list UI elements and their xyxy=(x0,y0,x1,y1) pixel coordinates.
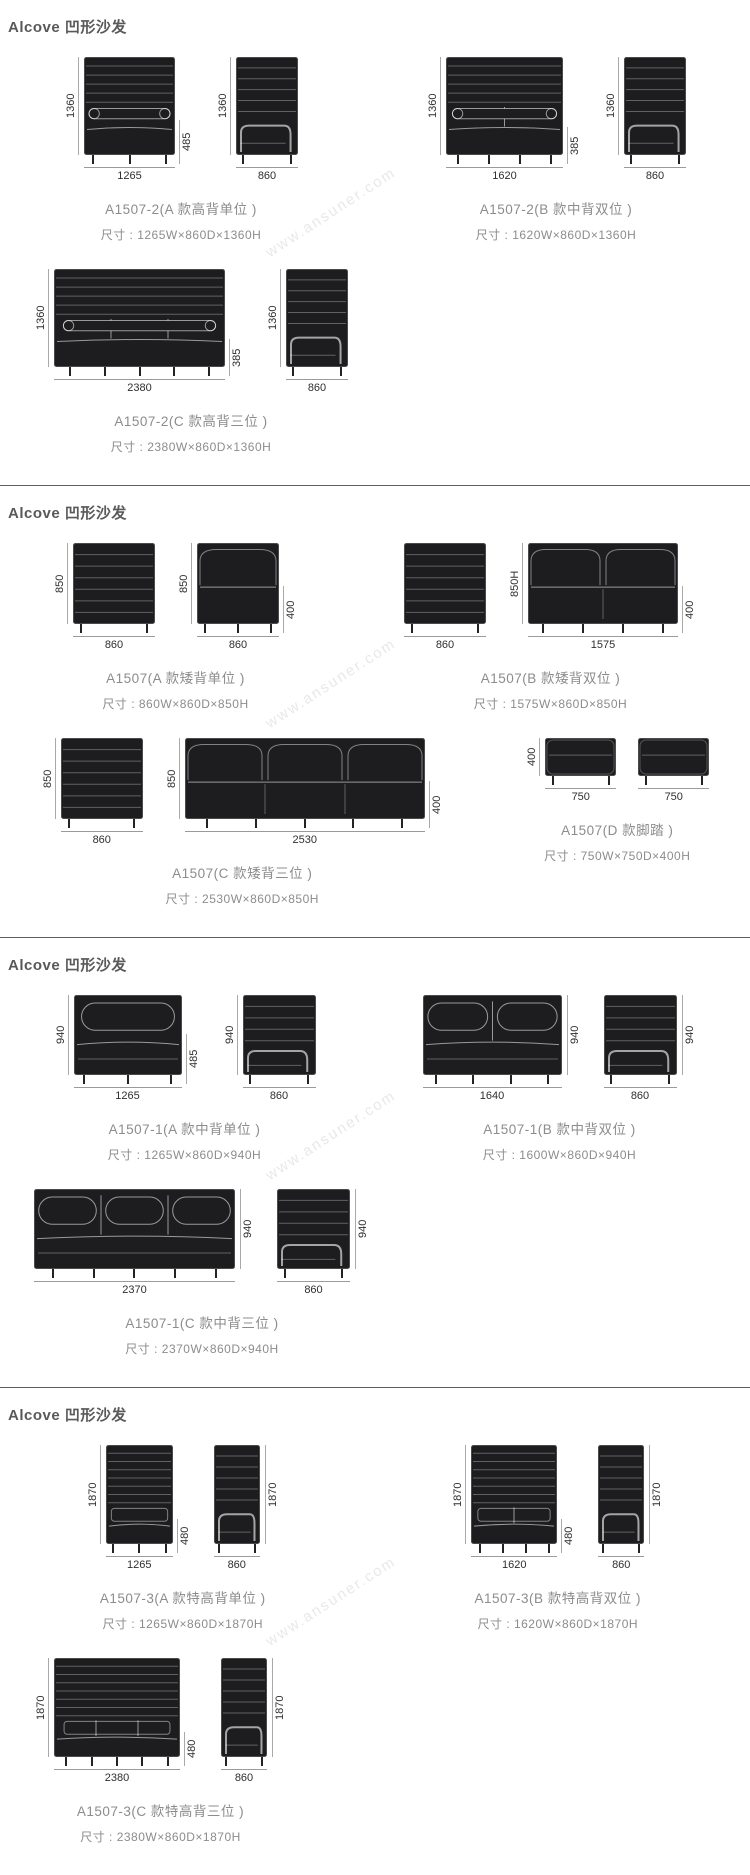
dimension-line xyxy=(191,543,192,624)
sofa-legs xyxy=(61,819,143,828)
height-dimension-label: 1360 xyxy=(266,269,280,367)
width-dimension-label: 860 xyxy=(598,1557,644,1573)
product-dimensions: 尺寸 : 750W×750D×400H xyxy=(544,847,690,864)
width-dimension-label: 860 xyxy=(73,637,155,653)
height-dimension-label: 1360 xyxy=(34,269,48,367)
product-card: 1870 1620 480 860 1870A1507-3(B 款特高背双位 )… xyxy=(451,1445,664,1632)
width-dimension-label: 860 xyxy=(61,832,143,848)
drawing-front-view: 1870 1620 480 xyxy=(451,1445,576,1573)
height-dimension: 1870 xyxy=(34,1658,49,1757)
sofa-front-drawing xyxy=(185,738,425,819)
width-dimension-label: 1640 xyxy=(423,1088,562,1104)
sofa-legs xyxy=(74,1075,182,1084)
width-dimension-label: 860 xyxy=(286,380,348,396)
height-dimension: 1360 xyxy=(426,57,441,155)
product-model: A1507-1(A 款中背单位 ) xyxy=(109,1118,261,1138)
product-dimensions: 尺寸 : 1620W×860D×1360H xyxy=(476,226,637,243)
product-model: A1507-2(B 款中背双位 ) xyxy=(480,198,633,218)
seat-height-dimension: 485 xyxy=(179,120,194,164)
dimension-line xyxy=(78,57,79,155)
height-dimension-label: 940 xyxy=(683,995,697,1075)
sofa-legs xyxy=(528,624,678,633)
product-dimensions: 尺寸 : 2380W×860D×1870H xyxy=(80,1828,241,1845)
product-views: 1870 1620 480 860 1870 xyxy=(451,1445,664,1573)
product-row: 850 860 850 2530 400 A1507(C 款矮背三位 )尺寸 :… xyxy=(0,738,750,907)
height-dimension: 1360 xyxy=(604,57,619,155)
seat-height-dimension: 385 xyxy=(567,127,582,164)
drawing-side-view: 860 940 xyxy=(604,995,697,1104)
product-model: A1507-2(C 款高背三位 ) xyxy=(114,410,267,430)
sofa-legs xyxy=(214,1544,260,1553)
drawing-front-view: 1360 1620 385 xyxy=(426,57,582,184)
seat-height-dimension-label: 385 xyxy=(568,127,582,164)
seat-height-dimension: 480 xyxy=(177,1519,192,1553)
product-row: 1360 2380 385 1360 860 A1507-2(C 款高背三位 )… xyxy=(0,269,750,455)
seat-height-dimension: 485 xyxy=(186,1034,201,1084)
drawing-side-view: 860 1870 xyxy=(598,1445,664,1573)
height-dimension: 1360 xyxy=(266,269,281,367)
product-views: 850 860 850 860 400 xyxy=(53,543,298,653)
height-dimension-label: 940 xyxy=(356,1189,370,1269)
sofa-legs xyxy=(404,624,486,633)
seat-height-dimension-label: 485 xyxy=(187,1034,201,1084)
sofa-legs xyxy=(471,1544,557,1553)
width-dimension-label: 860 xyxy=(214,1557,260,1573)
dimension-line xyxy=(539,738,540,776)
dimension-line xyxy=(465,1445,466,1544)
catalog-section: Alcove 凹形沙发www.ansuner.com1360 1265 485 … xyxy=(0,0,750,485)
width-dimension-label: 2370 xyxy=(34,1282,235,1298)
sofa-legs xyxy=(286,367,348,376)
sofa-front-drawing xyxy=(74,995,182,1075)
section-header: Alcove 凹形沙发 xyxy=(8,502,750,523)
product-card: 1360 2380 385 1360 860 A1507-2(C 款高背三位 )… xyxy=(34,269,348,455)
height-dimension-label: 1870 xyxy=(650,1445,664,1544)
sofa-legs xyxy=(236,155,298,164)
sofa-legs xyxy=(604,1075,677,1084)
width-dimension-label: 860 xyxy=(604,1088,677,1104)
product-card: 1870 1265 480 860 1870A1507-3(A 款特高背单位 )… xyxy=(86,1445,280,1632)
height-dimension-label: 850 xyxy=(177,543,191,624)
sofa-front-drawing xyxy=(471,1445,557,1544)
drawing-front-view: 1870 2380 480 xyxy=(34,1658,199,1786)
height-dimension: 1870 xyxy=(649,1445,664,1544)
product-dimensions: 尺寸 : 1265W×860D×1360H xyxy=(101,226,262,243)
catalog-section: Alcove 凹形沙发www.ansuner.com1870 1265 480 … xyxy=(0,1387,750,1875)
height-dimension-label: 850H xyxy=(508,543,522,624)
product-model: A1507-3(B 款特高背双位 ) xyxy=(474,1587,641,1607)
catalog-section: Alcove 凹形沙发www.ansuner.com850 860 850 86… xyxy=(0,485,750,937)
height-dimension-label: 1360 xyxy=(426,57,440,155)
product-card: 2370 940 860 940A1507-1(C 款中背三位 )尺寸 : 23… xyxy=(34,1189,370,1357)
height-dimension: 1360 xyxy=(216,57,231,155)
product-views: 400 750 750 xyxy=(525,738,709,805)
drawing-side-view: 860 xyxy=(404,543,486,653)
height-dimension: 1870 xyxy=(272,1658,287,1757)
dimension-line xyxy=(522,543,523,624)
drawing-front-view: 1360 2380 385 xyxy=(34,269,244,396)
drawing-front-view: 850H 1575 400 xyxy=(508,543,697,653)
sofa-side-drawing xyxy=(286,269,348,367)
product-views: 1870 1265 480 860 1870 xyxy=(86,1445,280,1573)
sofa-legs xyxy=(34,1269,235,1278)
height-dimension: 1360 xyxy=(34,269,49,367)
width-dimension-label: 860 xyxy=(236,168,298,184)
sofa-legs xyxy=(73,624,155,633)
product-views: 2370 940 860 940 xyxy=(34,1189,370,1298)
drawing-front-view: 1640 940 xyxy=(423,995,582,1104)
drawing-side-view: 850 860 xyxy=(41,738,143,848)
width-dimension-label: 1265 xyxy=(74,1088,182,1104)
sofa-side-drawing xyxy=(277,1189,350,1269)
product-model: A1507-1(C 款中背三位 ) xyxy=(125,1312,278,1332)
section-header: Alcove 凹形沙发 xyxy=(8,954,750,975)
sofa-front-drawing xyxy=(54,1658,180,1757)
sofa-stool-drawing xyxy=(638,738,709,776)
height-dimension: 1870 xyxy=(451,1445,466,1544)
height-dimension: 940 xyxy=(240,1189,255,1269)
seat-height-dimension-label: 480 xyxy=(562,1519,576,1553)
sofa-legs xyxy=(106,1544,173,1553)
height-dimension: 850 xyxy=(165,738,180,819)
drawing-front-view: 2370 940 xyxy=(34,1189,255,1298)
width-dimension-label: 860 xyxy=(624,168,686,184)
product-row: 1360 1265 485 1360 860 A1507-2(A 款高背单位 )… xyxy=(0,57,750,243)
height-dimension: 940 xyxy=(223,995,238,1075)
height-dimension-label: 1360 xyxy=(604,57,618,155)
seat-height-dimension-label: 400 xyxy=(683,586,697,633)
seat-height-dimension-label: 480 xyxy=(185,1732,199,1766)
sofa-legs xyxy=(624,155,686,164)
seat-height-dimension-label: 400 xyxy=(430,781,444,828)
dimension-line xyxy=(67,543,68,624)
sofa-legs xyxy=(197,624,279,633)
width-dimension-label: 860 xyxy=(243,1088,316,1104)
sofa-front-drawing xyxy=(423,995,562,1075)
product-model: A1507(D 款脚踏 ) xyxy=(561,819,673,839)
sofa-legs xyxy=(598,1544,644,1553)
sofa-side-drawing xyxy=(61,738,143,819)
sofa-front-drawing xyxy=(34,1189,235,1269)
product-card: 400 750 750 A1507(D 款脚踏 )尺寸 : 750W×750D×… xyxy=(525,738,709,864)
sofa-legs xyxy=(423,1075,562,1084)
seat-height-dimension: 400 xyxy=(283,586,298,633)
sofa-legs xyxy=(545,776,616,785)
product-card: 850 860 850 860 400 A1507(A 款矮背单位 )尺寸 : … xyxy=(53,543,298,712)
product-dimensions: 尺寸 : 1265W×860D×1870H xyxy=(102,1615,263,1632)
product-row: 1870 1265 480 860 1870A1507-3(A 款特高背单位 )… xyxy=(0,1445,750,1632)
dimension-line xyxy=(48,269,49,367)
drawing-front-view: 850 2530 400 xyxy=(165,738,444,848)
width-dimension-label: 1620 xyxy=(471,1557,557,1573)
height-dimension: 1870 xyxy=(86,1445,101,1544)
sofa-legs xyxy=(54,367,225,376)
height-dimension-label: 1360 xyxy=(216,57,230,155)
width-dimension-label: 860 xyxy=(404,637,486,653)
product-views: 1360 1265 485 1360 860 xyxy=(64,57,298,184)
sofa-front-drawing xyxy=(446,57,563,155)
product-dimensions: 尺寸 : 860W×860D×850H xyxy=(102,695,248,712)
height-dimension-label: 1870 xyxy=(86,1445,100,1544)
sofa-side-drawing xyxy=(404,543,486,624)
seat-height-dimension: 480 xyxy=(561,1519,576,1553)
sofa-legs xyxy=(84,155,175,164)
height-dimension-label: 1870 xyxy=(273,1658,287,1757)
seat-height-dimension: 385 xyxy=(229,339,244,376)
sofa-side-drawing xyxy=(624,57,686,155)
drawing-side-view: 860 1870 xyxy=(214,1445,280,1573)
drawing-side-view: 1360 860 xyxy=(216,57,298,184)
height-dimension-label: 850 xyxy=(165,738,179,819)
dimension-line xyxy=(230,57,231,155)
product-model: A1507-1(B 款中背双位 ) xyxy=(483,1118,636,1138)
product-dimensions: 尺寸 : 1600W×860D×940H xyxy=(483,1146,636,1163)
product-views: 940 1265 485 940 860 xyxy=(54,995,316,1104)
sofa-front-drawing xyxy=(54,269,225,367)
height-dimension: 1360 xyxy=(64,57,79,155)
width-dimension-label: 2380 xyxy=(54,380,225,396)
sofa-front-drawing xyxy=(528,543,678,624)
seat-height-dimension-label: 385 xyxy=(230,339,244,376)
drawing-side-view: 860 1870 xyxy=(221,1658,287,1786)
product-dimensions: 尺寸 : 2530W×860D×850H xyxy=(166,890,319,907)
dimension-line xyxy=(618,57,619,155)
product-views: 860 850H 1575 400 xyxy=(404,543,697,653)
drawing-front-view: 850 860 400 xyxy=(177,543,298,653)
seat-height-dimension-label: 485 xyxy=(180,120,194,164)
height-dimension: 940 xyxy=(682,995,697,1075)
product-row: 1870 2380 480 860 1870A1507-3(C 款特高背三位 )… xyxy=(0,1658,750,1845)
product-model: A1507(C 款矮背三位 ) xyxy=(172,862,312,882)
height-dimension-label: 400 xyxy=(525,738,539,776)
drawing-side-view: 850 860 xyxy=(53,543,155,653)
width-dimension-label: 750 xyxy=(638,789,709,805)
product-model: A1507(B 款矮背双位 ) xyxy=(481,667,621,687)
dimension-line xyxy=(280,269,281,367)
height-dimension-label: 940 xyxy=(54,995,68,1075)
sofa-side-drawing xyxy=(236,57,298,155)
sofa-front-drawing xyxy=(197,543,279,624)
product-card: 1360 1620 385 1360 860 A1507-2(B 款中背双位 )… xyxy=(426,57,686,243)
width-dimension-label: 1575 xyxy=(528,637,678,653)
section-header: Alcove 凹形沙发 xyxy=(8,16,750,37)
sofa-stool-drawing xyxy=(545,738,616,776)
height-dimension-label: 940 xyxy=(223,995,237,1075)
width-dimension-label: 860 xyxy=(197,637,279,653)
sofa-legs xyxy=(54,1757,180,1766)
width-dimension-label: 1620 xyxy=(446,168,563,184)
height-dimension-label: 1870 xyxy=(266,1445,280,1544)
drawing-stool-view: 400 750 xyxy=(525,738,616,805)
product-views: 1870 2380 480 860 1870 xyxy=(34,1658,287,1786)
height-dimension: 400 xyxy=(525,738,540,776)
drawing-stool-view: 750 xyxy=(638,738,709,805)
width-dimension-label: 860 xyxy=(221,1770,267,1786)
width-dimension-label: 860 xyxy=(277,1282,350,1298)
product-views: 1360 1620 385 1360 860 xyxy=(426,57,686,184)
seat-height-dimension-label: 400 xyxy=(284,586,298,633)
width-dimension-label: 2530 xyxy=(185,832,425,848)
drawing-side-view: 1360 860 xyxy=(604,57,686,184)
height-dimension: 940 xyxy=(355,1189,370,1269)
sofa-front-drawing xyxy=(106,1445,173,1544)
height-dimension-label: 1360 xyxy=(64,57,78,155)
product-views: 1360 2380 385 1360 860 xyxy=(34,269,348,396)
product-card: 850 860 850 2530 400 A1507(C 款矮背三位 )尺寸 :… xyxy=(41,738,444,907)
sofa-side-drawing xyxy=(221,1658,267,1757)
product-model: A1507-2(A 款高背单位 ) xyxy=(105,198,257,218)
seat-height-dimension: 400 xyxy=(682,586,697,633)
width-dimension-label: 1265 xyxy=(84,168,175,184)
product-dimensions: 尺寸 : 2370W×860D×940H xyxy=(125,1340,278,1357)
height-dimension: 850 xyxy=(177,543,192,624)
sofa-legs xyxy=(277,1269,350,1278)
height-dimension: 850 xyxy=(41,738,56,819)
seat-height-dimension: 400 xyxy=(429,781,444,828)
product-model: A1507(A 款矮背单位 ) xyxy=(106,667,245,687)
sofa-side-drawing xyxy=(604,995,677,1075)
height-dimension-label: 940 xyxy=(568,995,582,1075)
sofa-side-drawing xyxy=(214,1445,260,1544)
height-dimension-label: 1870 xyxy=(451,1445,465,1544)
product-card: 860 850H 1575 400 A1507(B 款矮背双位 )尺寸 : 15… xyxy=(404,543,697,712)
product-card: 1360 1265 485 1360 860 A1507-2(A 款高背单位 )… xyxy=(64,57,298,243)
sofa-side-drawing xyxy=(243,995,316,1075)
sofa-legs xyxy=(221,1757,267,1766)
width-dimension-label: 1265 xyxy=(106,1557,173,1573)
product-model: A1507-3(C 款特高背三位 ) xyxy=(77,1800,244,1820)
drawing-front-view: 940 1265 485 xyxy=(54,995,201,1104)
sofa-side-drawing xyxy=(73,543,155,624)
product-dimensions: 尺寸 : 1620W×860D×1870H xyxy=(477,1615,638,1632)
height-dimension-label: 850 xyxy=(53,543,67,624)
sofa-front-drawing xyxy=(84,57,175,155)
drawing-side-view: 1360 860 xyxy=(266,269,348,396)
catalog-section: Alcove 凹形沙发www.ansuner.com940 1265 485 9… xyxy=(0,937,750,1387)
sofa-legs xyxy=(638,776,709,785)
sofa-legs xyxy=(446,155,563,164)
product-views: 850 860 850 2530 400 xyxy=(41,738,444,848)
width-dimension-label: 2380 xyxy=(54,1770,180,1786)
sofa-legs xyxy=(185,819,425,828)
drawing-front-view: 1360 1265 485 xyxy=(64,57,194,184)
product-row: 940 1265 485 940 860 A1507-1(A 款中背单位 )尺寸… xyxy=(0,995,750,1163)
dimension-line xyxy=(48,1658,49,1757)
catalog-page: Alcove 凹形沙发www.ansuner.com1360 1265 485 … xyxy=(0,0,750,1875)
height-dimension: 940 xyxy=(54,995,69,1075)
product-card: 1640 940 860 940A1507-1(B 款中背双位 )尺寸 : 16… xyxy=(423,995,697,1163)
height-dimension-label: 940 xyxy=(241,1189,255,1269)
drawing-side-view: 940 860 xyxy=(223,995,316,1104)
height-dimension: 850H xyxy=(508,543,523,624)
product-card: 940 1265 485 940 860 A1507-1(A 款中背单位 )尺寸… xyxy=(54,995,316,1163)
drawing-front-view: 1870 1265 480 xyxy=(86,1445,192,1573)
product-card: 1870 2380 480 860 1870A1507-3(C 款特高背三位 )… xyxy=(34,1658,287,1845)
product-row: 2370 940 860 940A1507-1(C 款中背三位 )尺寸 : 23… xyxy=(0,1189,750,1357)
section-header: Alcove 凹形沙发 xyxy=(8,1404,750,1425)
width-dimension-label: 750 xyxy=(545,789,616,805)
height-dimension: 940 xyxy=(567,995,582,1075)
sofa-side-drawing xyxy=(598,1445,644,1544)
product-dimensions: 尺寸 : 1265W×860D×940H xyxy=(108,1146,261,1163)
height-dimension: 850 xyxy=(53,543,68,624)
height-dimension: 1870 xyxy=(265,1445,280,1544)
seat-height-dimension: 480 xyxy=(184,1732,199,1766)
product-dimensions: 尺寸 : 2380W×860D×1360H xyxy=(111,438,272,455)
sofa-legs xyxy=(243,1075,316,1084)
seat-height-dimension-label: 480 xyxy=(178,1519,192,1553)
product-views: 1640 940 860 940 xyxy=(423,995,697,1104)
product-dimensions: 尺寸 : 1575W×860D×850H xyxy=(474,695,627,712)
drawing-side-view: 860 940 xyxy=(277,1189,370,1298)
product-model: A1507-3(A 款特高背单位 ) xyxy=(100,1587,266,1607)
height-dimension-label: 1870 xyxy=(34,1658,48,1757)
height-dimension-label: 850 xyxy=(41,738,55,819)
product-row: 850 860 850 860 400 A1507(A 款矮背单位 )尺寸 : … xyxy=(0,543,750,712)
dimension-line xyxy=(440,57,441,155)
